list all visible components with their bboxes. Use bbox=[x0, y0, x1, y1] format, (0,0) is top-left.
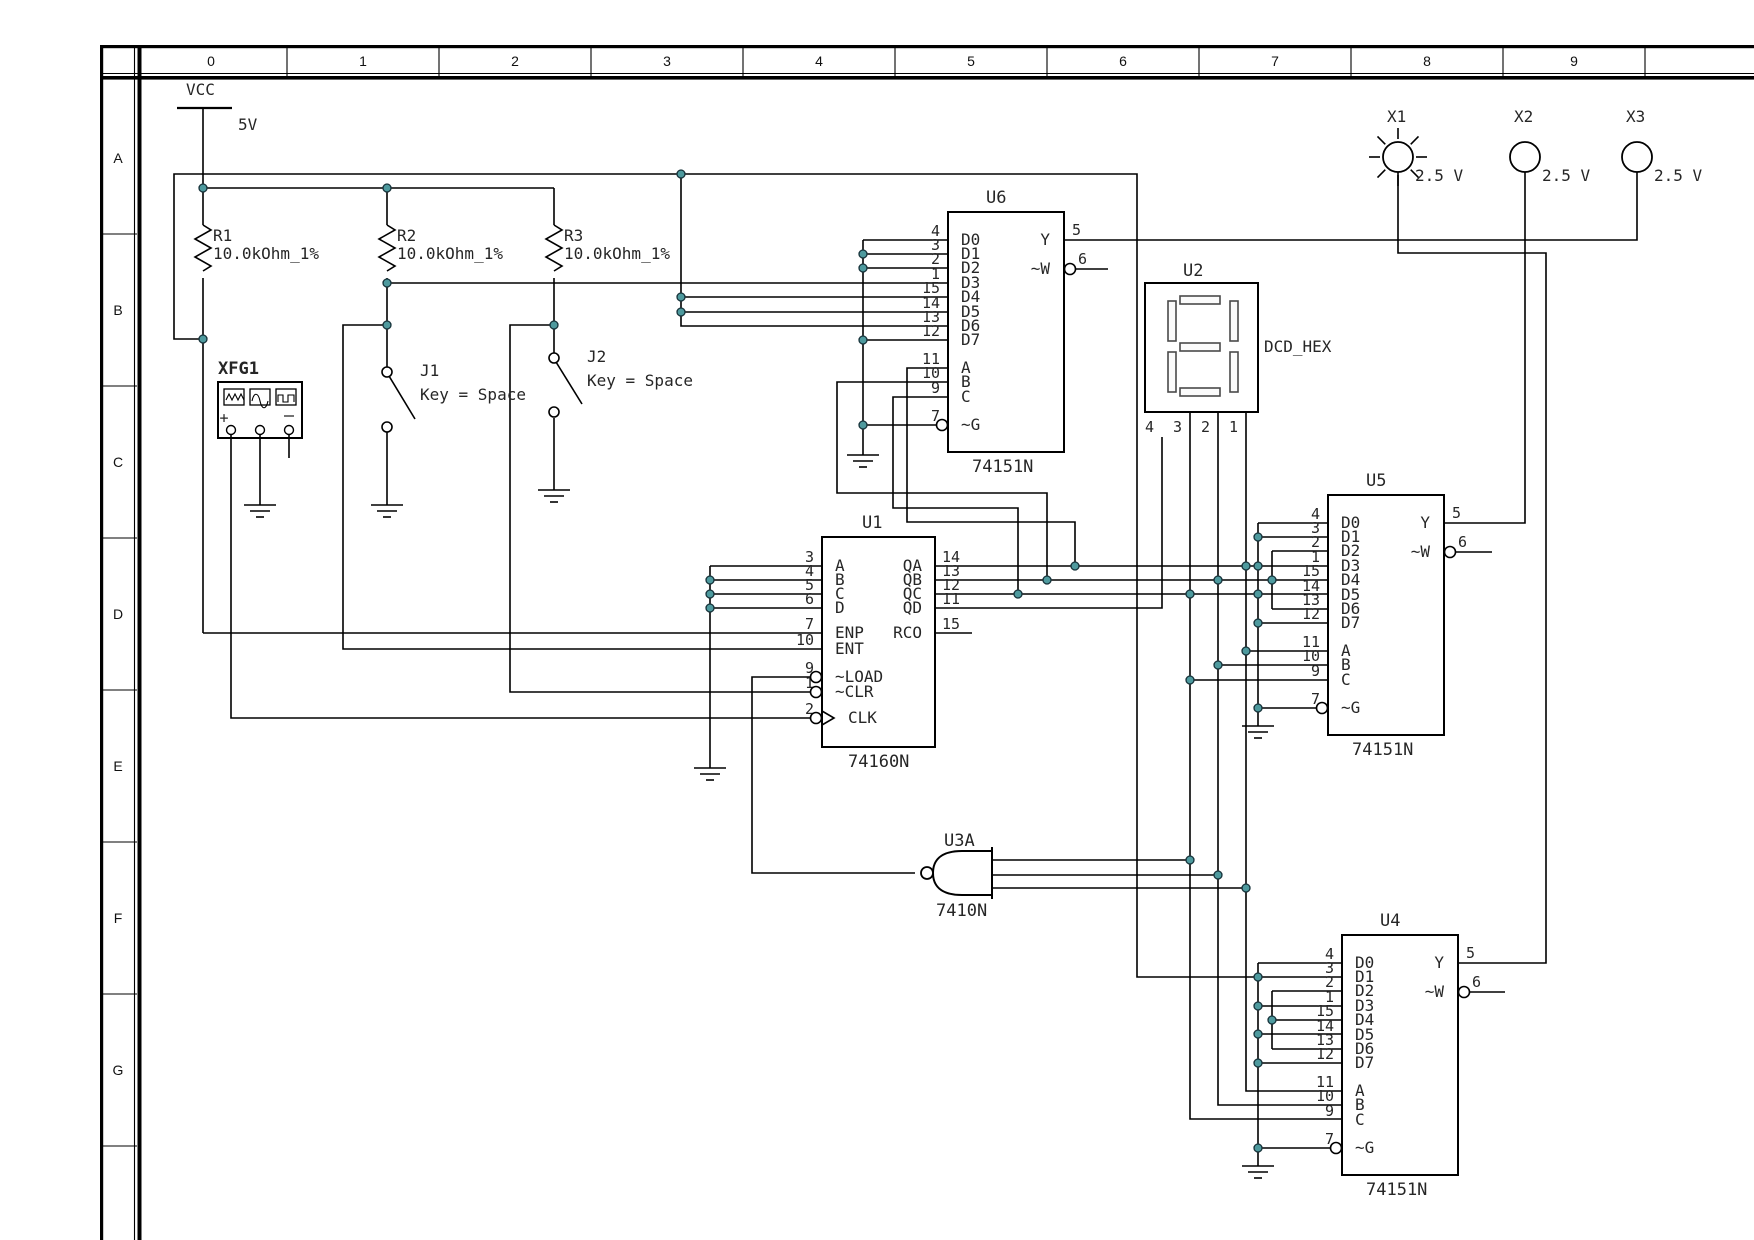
active-low-bubble bbox=[811, 713, 822, 724]
lamp-x3[interactable]: X32.5 V bbox=[1622, 107, 1703, 185]
pin-name: ~G bbox=[1355, 1138, 1374, 1157]
resistor-value: 10.0kOhm_1% bbox=[564, 244, 670, 263]
pin-number: 10 bbox=[796, 631, 814, 649]
xfg1-ref: XFG1 bbox=[218, 359, 259, 379]
junction-dot bbox=[1014, 590, 1022, 598]
ic-part: 74151N bbox=[1366, 1180, 1427, 1200]
ic-ref: U3A bbox=[944, 831, 975, 851]
ic-part: 74151N bbox=[972, 457, 1033, 477]
junction-dot bbox=[706, 590, 714, 598]
sheet-border: 0123456789 ABCDEFG bbox=[100, 45, 1754, 1240]
grid-row-F: F bbox=[114, 910, 123, 926]
pin-number: 12 bbox=[1302, 605, 1320, 623]
plus-label: + bbox=[219, 409, 228, 427]
active-low-bubble bbox=[921, 867, 933, 879]
junction-dot bbox=[383, 184, 391, 192]
pin-name: D7 bbox=[1355, 1053, 1374, 1072]
resistor-ref: R1 bbox=[213, 226, 232, 245]
junction-dot bbox=[1254, 1030, 1262, 1038]
grid-column-labels: 0123456789 bbox=[207, 53, 1578, 69]
grid-col-5: 5 bbox=[967, 53, 975, 69]
pin-name: C bbox=[961, 387, 971, 406]
pin-number: 9 bbox=[1311, 662, 1320, 680]
active-low-bubble bbox=[937, 420, 948, 431]
grid-row-B: B bbox=[113, 302, 122, 318]
switch-ref: J1 bbox=[420, 361, 439, 380]
junction-dot bbox=[1254, 704, 1262, 712]
pin-name: Y bbox=[1040, 230, 1050, 249]
segment-g bbox=[1180, 343, 1220, 351]
display-u2[interactable]: U24321 bbox=[1145, 261, 1258, 436]
ic-ref: U6 bbox=[986, 188, 1006, 208]
pin-number: 6 bbox=[1472, 973, 1481, 991]
ic-ref: U5 bbox=[1366, 471, 1386, 491]
pin-number: 5 bbox=[1466, 944, 1475, 962]
lamp-ray bbox=[1377, 170, 1385, 178]
ground-symbol bbox=[371, 505, 403, 517]
ic-part: 74151N bbox=[1352, 740, 1413, 760]
pin-number: 12 bbox=[1316, 1045, 1334, 1063]
grid-row-G: G bbox=[113, 1062, 124, 1078]
junction-dot bbox=[1268, 576, 1276, 584]
resistor-value: 10.0kOhm_1% bbox=[213, 244, 319, 263]
junction-dot bbox=[1254, 562, 1262, 570]
pin-number: 15 bbox=[942, 615, 960, 633]
junction-dot bbox=[706, 576, 714, 584]
junction-dot bbox=[550, 321, 558, 329]
active-low-bubble bbox=[1445, 547, 1456, 558]
active-low-bubble bbox=[811, 672, 822, 683]
junction-dot bbox=[1214, 576, 1222, 584]
clock-triangle-icon bbox=[822, 711, 834, 725]
lamp-x2[interactable]: X22.5 V bbox=[1510, 107, 1591, 185]
resistor-r2[interactable]: R210.0kOhm_1% bbox=[379, 225, 503, 271]
lamp-ref: X2 bbox=[1514, 107, 1533, 126]
junction-dot bbox=[383, 321, 391, 329]
pin-number: 6 bbox=[1078, 250, 1087, 268]
pin-name: ~W bbox=[1031, 259, 1051, 278]
junction-dot bbox=[1254, 619, 1262, 627]
junction-dot bbox=[1254, 590, 1262, 598]
junction-dot bbox=[199, 184, 207, 192]
grid-col-8: 8 bbox=[1423, 53, 1431, 69]
pin-name: ~W bbox=[1425, 982, 1445, 1001]
ic-u6[interactable]: U674151N4D03D12D21D315D414D513D612D711A1… bbox=[922, 188, 1087, 477]
pin-name: D bbox=[835, 598, 845, 617]
pin-number: 6 bbox=[805, 590, 814, 608]
segment-f bbox=[1168, 301, 1176, 341]
grid-col-4: 4 bbox=[815, 53, 823, 69]
active-low-bubble bbox=[1317, 703, 1328, 714]
resistor-value: 10.0kOhm_1% bbox=[397, 244, 503, 263]
switch-key-label: Key = Space bbox=[587, 371, 693, 390]
junction-dot bbox=[1186, 856, 1194, 864]
active-low-bubble bbox=[1331, 1143, 1342, 1154]
resistor-r1[interactable]: R110.0kOhm_1% bbox=[195, 225, 319, 271]
waveform-button[interactable] bbox=[276, 389, 296, 405]
grid-row-labels: ABCDEFG bbox=[113, 150, 124, 1078]
ic-part: 74160N bbox=[848, 752, 909, 772]
display-ref: U2 bbox=[1183, 261, 1203, 281]
junction-dot bbox=[1254, 973, 1262, 981]
ic-u5[interactable]: U574151N4D03D12D21D315D414D513D612D711A1… bbox=[1302, 471, 1467, 760]
pin-name: ~G bbox=[961, 415, 980, 434]
junction-dot bbox=[706, 604, 714, 612]
junction-dot bbox=[1254, 1059, 1262, 1067]
active-low-bubble bbox=[811, 687, 822, 698]
function-generator-xfg1[interactable]: + bbox=[218, 382, 302, 438]
junction-dot bbox=[859, 336, 867, 344]
segment-d bbox=[1180, 388, 1220, 396]
resistor-ref: R2 bbox=[397, 226, 416, 245]
pin-name: ENT bbox=[835, 639, 864, 658]
ground-symbol bbox=[244, 505, 276, 517]
pin-name: RCO bbox=[893, 623, 922, 642]
junction-dot bbox=[383, 279, 391, 287]
grid-col-6: 6 bbox=[1119, 53, 1127, 69]
grid-row-A: A bbox=[113, 150, 123, 166]
lamp-x1[interactable]: X12.5 V bbox=[1369, 107, 1464, 186]
ground-symbol bbox=[538, 490, 570, 502]
xfg1-terminal-common[interactable] bbox=[256, 426, 265, 435]
junction-dot bbox=[1214, 871, 1222, 879]
lamp-ref: X1 bbox=[1387, 107, 1406, 126]
display-pin-number: 1 bbox=[1229, 418, 1238, 436]
display-part-label: DCD_HEX bbox=[1264, 337, 1332, 356]
segment-b bbox=[1230, 301, 1238, 341]
switch-ref: J2 bbox=[587, 347, 606, 366]
pin-name: ~G bbox=[1341, 698, 1360, 717]
junction-dot bbox=[1268, 1016, 1276, 1024]
junction-dot bbox=[199, 335, 207, 343]
ground-symbol bbox=[1242, 1166, 1274, 1178]
lamp-ray bbox=[1411, 136, 1419, 144]
junction-dot bbox=[859, 421, 867, 429]
ic-u4[interactable]: U474151N4D03D12D21D315D414D513D612D711A1… bbox=[1316, 911, 1481, 1200]
grid-col-0: 0 bbox=[207, 53, 215, 69]
grid-row-lines bbox=[103, 234, 137, 1146]
xfg1-terminal-minus[interactable] bbox=[285, 426, 294, 435]
junction-dot bbox=[677, 293, 685, 301]
grid-row-E: E bbox=[113, 758, 122, 774]
lamp-value: 2.5 V bbox=[1654, 166, 1703, 185]
pin-number: 9 bbox=[931, 379, 940, 397]
pin-number: 12 bbox=[922, 322, 940, 340]
vcc-label: VCC bbox=[186, 80, 215, 99]
pin-name: CLK bbox=[848, 708, 877, 727]
ground-symbols bbox=[244, 455, 1274, 1178]
junction-dot bbox=[677, 170, 685, 178]
grid-col-7: 7 bbox=[1271, 53, 1279, 69]
switch-j2[interactable]: J2Key = Space bbox=[549, 347, 693, 417]
ground-symbol bbox=[847, 455, 879, 467]
pin-name: C bbox=[1341, 670, 1351, 689]
ic-u1[interactable]: U174160N3A4B5C6D7ENP10ENT9~LOAD1~CLR2CLK… bbox=[796, 513, 960, 772]
pin-number: 5 bbox=[1072, 221, 1081, 239]
junction-dot bbox=[1214, 661, 1222, 669]
segment-e bbox=[1168, 352, 1176, 392]
grid-col-9: 9 bbox=[1570, 53, 1578, 69]
ic-ref: U1 bbox=[862, 513, 882, 533]
lamp-ref: X3 bbox=[1626, 107, 1645, 126]
junction-dot bbox=[1071, 562, 1079, 570]
junction-dot bbox=[1043, 576, 1051, 584]
active-low-bubble bbox=[1459, 987, 1470, 998]
junction-dot bbox=[1242, 647, 1250, 655]
active-low-bubble bbox=[1065, 264, 1076, 275]
grid-col-3: 3 bbox=[663, 53, 671, 69]
junction-dot bbox=[1186, 590, 1194, 598]
ground-symbol bbox=[694, 768, 726, 780]
lamp-ray bbox=[1377, 136, 1385, 144]
pin-name: C bbox=[1355, 1110, 1365, 1129]
lamp-value: 2.5 V bbox=[1415, 166, 1464, 185]
segment-c bbox=[1230, 352, 1238, 392]
switch-j1[interactable]: J1Key = Space bbox=[382, 361, 526, 432]
pin-number: 11 bbox=[942, 590, 960, 608]
vcc-value: 5V bbox=[238, 115, 258, 134]
junction-dot bbox=[859, 250, 867, 258]
schematic-sheet: 0123456789 ABCDEFG bbox=[0, 0, 1754, 1240]
junction-dot bbox=[677, 308, 685, 316]
junction-dot bbox=[1254, 533, 1262, 541]
ic-u3a[interactable]: U3A7410N bbox=[921, 831, 992, 921]
display-pin-number: 4 bbox=[1145, 418, 1154, 436]
ic-ref: U4 bbox=[1380, 911, 1400, 931]
pin-name: Y bbox=[1420, 513, 1430, 532]
grid-col-2: 2 bbox=[511, 53, 519, 69]
grid-column-lines bbox=[287, 48, 1645, 76]
junction-dot bbox=[1254, 1144, 1262, 1152]
junction-dot bbox=[1242, 884, 1250, 892]
pin-name: Y bbox=[1434, 953, 1444, 972]
junction-dot bbox=[1254, 1002, 1262, 1010]
grid-row-D: D bbox=[113, 606, 123, 622]
switch-key-label: Key = Space bbox=[420, 385, 526, 404]
pin-name: ~CLR bbox=[835, 682, 874, 701]
resistor-ref: R3 bbox=[564, 226, 583, 245]
segment-a bbox=[1180, 296, 1220, 304]
nand-gate-body bbox=[933, 851, 992, 895]
display-pin-number: 3 bbox=[1173, 418, 1182, 436]
pin-number: 9 bbox=[1325, 1102, 1334, 1120]
junction-dot bbox=[1186, 676, 1194, 684]
pin-name: QD bbox=[903, 598, 922, 617]
lamp-value: 2.5 V bbox=[1542, 166, 1591, 185]
pin-name: ~W bbox=[1411, 542, 1431, 561]
junction-dot bbox=[859, 264, 867, 272]
grid-row-C: C bbox=[113, 454, 123, 470]
pin-number: 5 bbox=[1452, 504, 1461, 522]
pin-number: 6 bbox=[1458, 533, 1467, 551]
junction-dots bbox=[199, 170, 1276, 1152]
pin-name: D7 bbox=[1341, 613, 1360, 632]
ic-part: 7410N bbox=[936, 901, 987, 921]
display-pin-number: 2 bbox=[1201, 418, 1210, 436]
pin-name: D7 bbox=[961, 330, 980, 349]
grid-col-1: 1 bbox=[359, 53, 367, 69]
junction-dot bbox=[1242, 562, 1250, 570]
resistor-r3[interactable]: R310.0kOhm_1% bbox=[546, 225, 670, 271]
